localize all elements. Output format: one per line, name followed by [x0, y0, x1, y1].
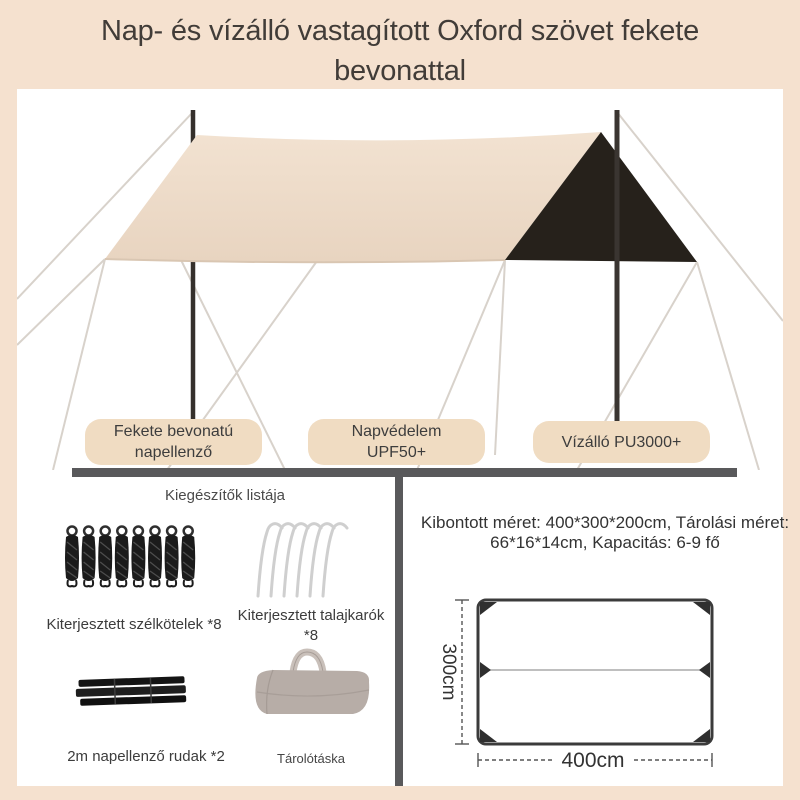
height-dimension-label: 300cm [440, 643, 459, 700]
feature-badge-waterproof: Vízálló PU3000+ [533, 421, 710, 463]
tarp-outline [478, 600, 712, 744]
accessories-title: Kiegészítők listája [125, 487, 325, 504]
vertical-divider [395, 477, 403, 786]
tent-stakes-label: Kiterjesztett talajkarók *8 [231, 606, 391, 646]
tarp-tent-photo [17, 89, 783, 470]
product-infographic: Nap- és vízálló vastagított Oxford szöve… [0, 0, 800, 800]
folded-poles-label: 2m napellenző rudak *2 [46, 747, 246, 767]
width-dimension-label: 400cm [561, 749, 624, 772]
tarp-dimension-diagram: 300cm 400cm [440, 588, 740, 783]
rope-bundles-label: Kiterjesztett szélkötelek *8 [34, 615, 234, 635]
feature-badge-black-coating: Fekete bevonatú napellenző [85, 419, 262, 465]
storage-bag-label: Tárolótáska [241, 749, 381, 769]
folded-poles-icon [73, 670, 193, 720]
dimensions-text: Kibontott méret: 400*300*200cm, Tárolási… [420, 513, 790, 553]
rope-bundles-icon [62, 522, 202, 598]
horizontal-divider [72, 468, 737, 477]
storage-bag-icon [243, 648, 383, 726]
page-title: Nap- és vízálló vastagított Oxford szöve… [50, 11, 750, 91]
feature-badge-upf50: Napvédelem UPF50+ [308, 419, 485, 465]
tent-stakes-icon [254, 516, 358, 602]
